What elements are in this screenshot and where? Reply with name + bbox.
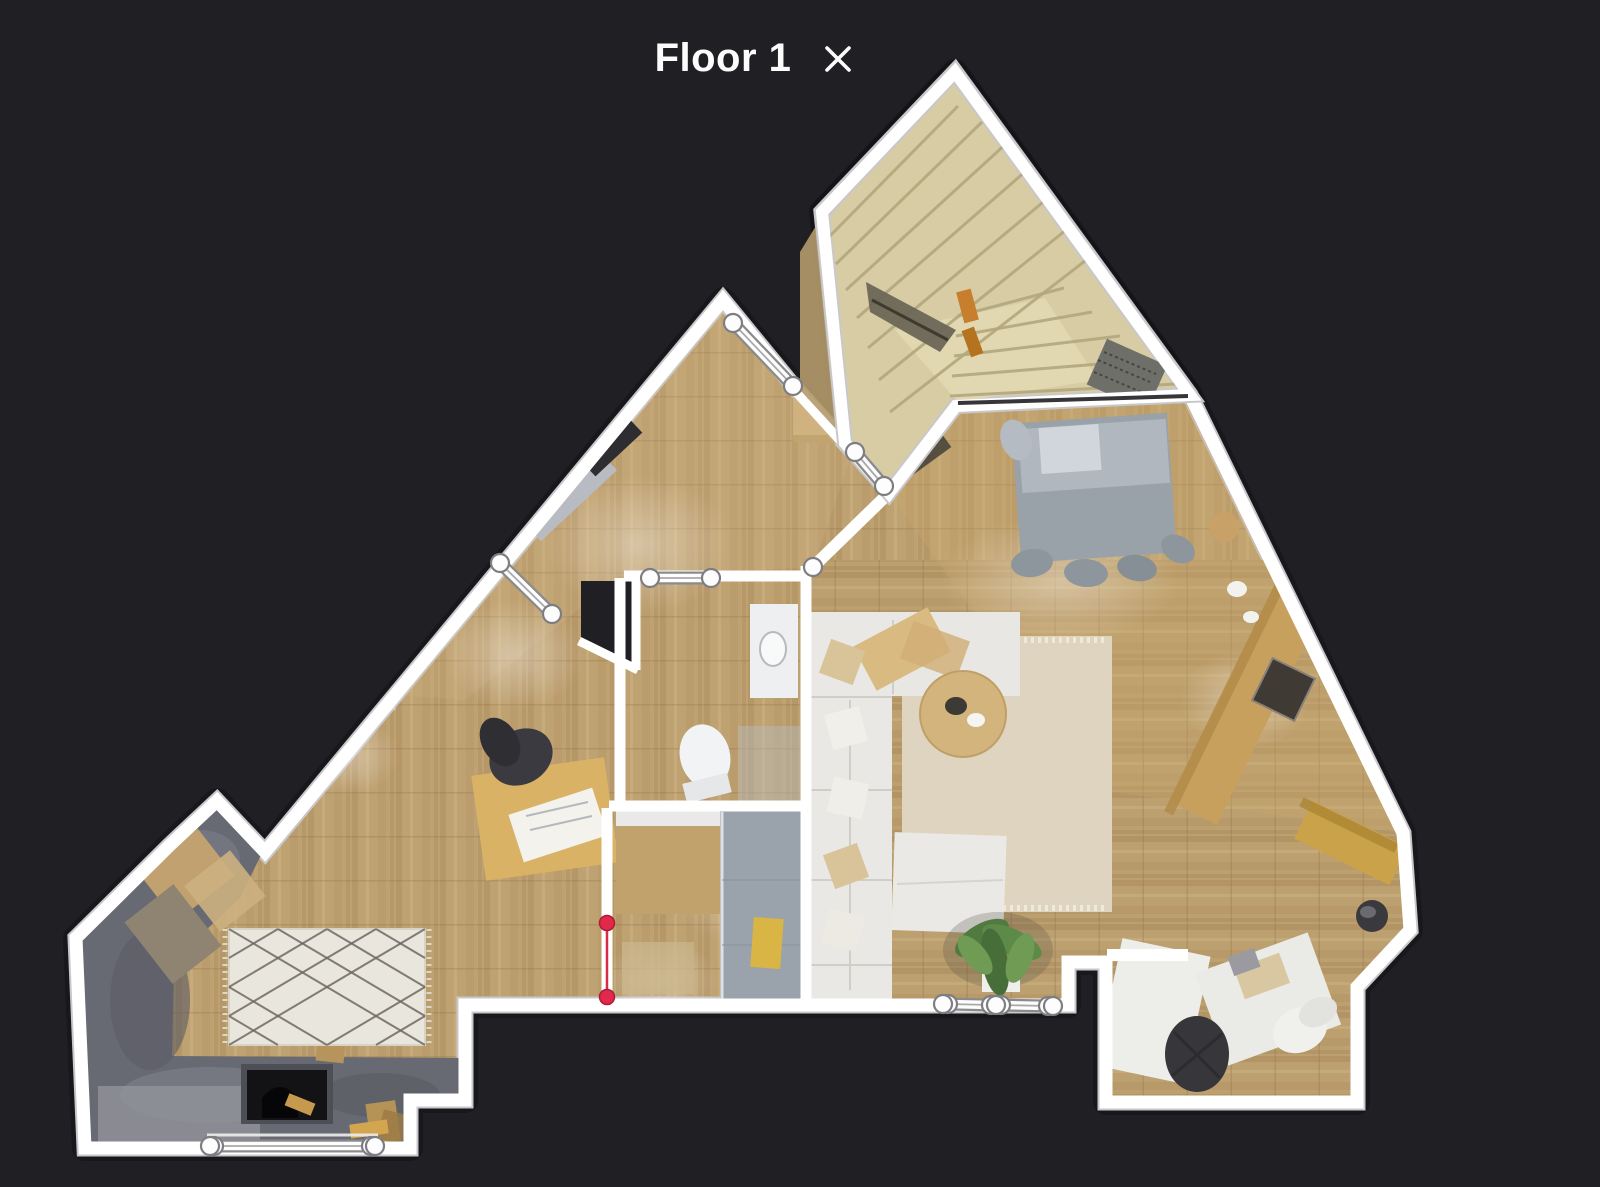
bath-mat <box>622 942 694 994</box>
door-marker-hinge[interactable] <box>724 314 742 332</box>
table-decor-white <box>967 713 985 727</box>
wall-junction-circle[interactable] <box>201 1137 219 1155</box>
door-marker-hinge[interactable] <box>543 605 561 623</box>
counter-item <box>1227 581 1247 597</box>
shower <box>720 810 805 1006</box>
measure-dot[interactable] <box>600 990 615 1005</box>
bath-vanity <box>616 816 722 914</box>
wall-junction-circle[interactable] <box>804 558 822 576</box>
toilet-tile <box>738 726 800 802</box>
robot-vacuum-highlight <box>1360 906 1376 918</box>
door-marker-hinge[interactable] <box>784 377 802 395</box>
floorplan-stage[interactable] <box>0 0 1600 1187</box>
close-icon <box>823 44 853 74</box>
table-decor-dark <box>945 697 967 715</box>
floor-glare <box>340 475 460 565</box>
sofa-pillow <box>827 777 870 820</box>
bath-vanity-top <box>616 810 722 826</box>
wall-junction-circle[interactable] <box>366 1137 384 1155</box>
door-marker-hinge[interactable] <box>702 569 720 587</box>
wall-junction-circle[interactable] <box>1044 997 1062 1015</box>
toilet-basin <box>760 632 786 666</box>
floor-glare <box>815 1010 965 1110</box>
door-marker-hinge[interactable] <box>491 554 509 572</box>
close-button[interactable] <box>821 42 855 76</box>
wall-junction-circle[interactable] <box>987 996 1005 1014</box>
coffee-table <box>920 671 1006 757</box>
bath-towel <box>750 917 783 969</box>
kitchen-stool <box>1209 512 1239 542</box>
door-marker-hinge[interactable] <box>641 569 659 587</box>
wall-junction-circle[interactable] <box>934 995 952 1013</box>
counter-item <box>1243 611 1259 623</box>
floorplan-svg[interactable] <box>0 0 1600 1187</box>
dining-table-sheet <box>1038 424 1101 474</box>
door-marker-hinge[interactable] <box>875 477 893 495</box>
measure-dot[interactable] <box>600 916 615 931</box>
door-marker-hinge[interactable] <box>846 443 864 461</box>
